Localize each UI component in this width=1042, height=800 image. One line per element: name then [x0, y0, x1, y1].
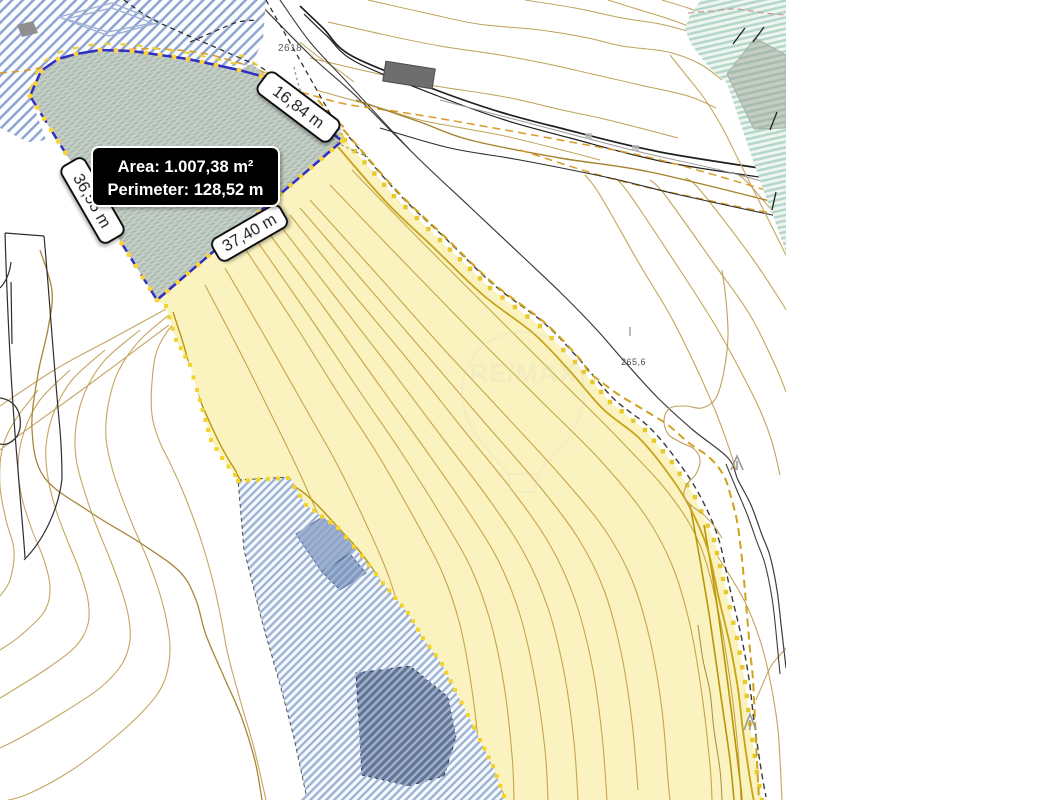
svg-text:RE/MAX: RE/MAX [469, 358, 576, 388]
svg-text:2618: 2618 [278, 43, 302, 54]
svg-text:265,6: 265,6 [621, 357, 646, 367]
svg-text:Area: 1.007,38 m²: Area: 1.007,38 m² [118, 158, 254, 176]
svg-text:Perimeter: 128,52 m: Perimeter: 128,52 m [108, 181, 264, 199]
